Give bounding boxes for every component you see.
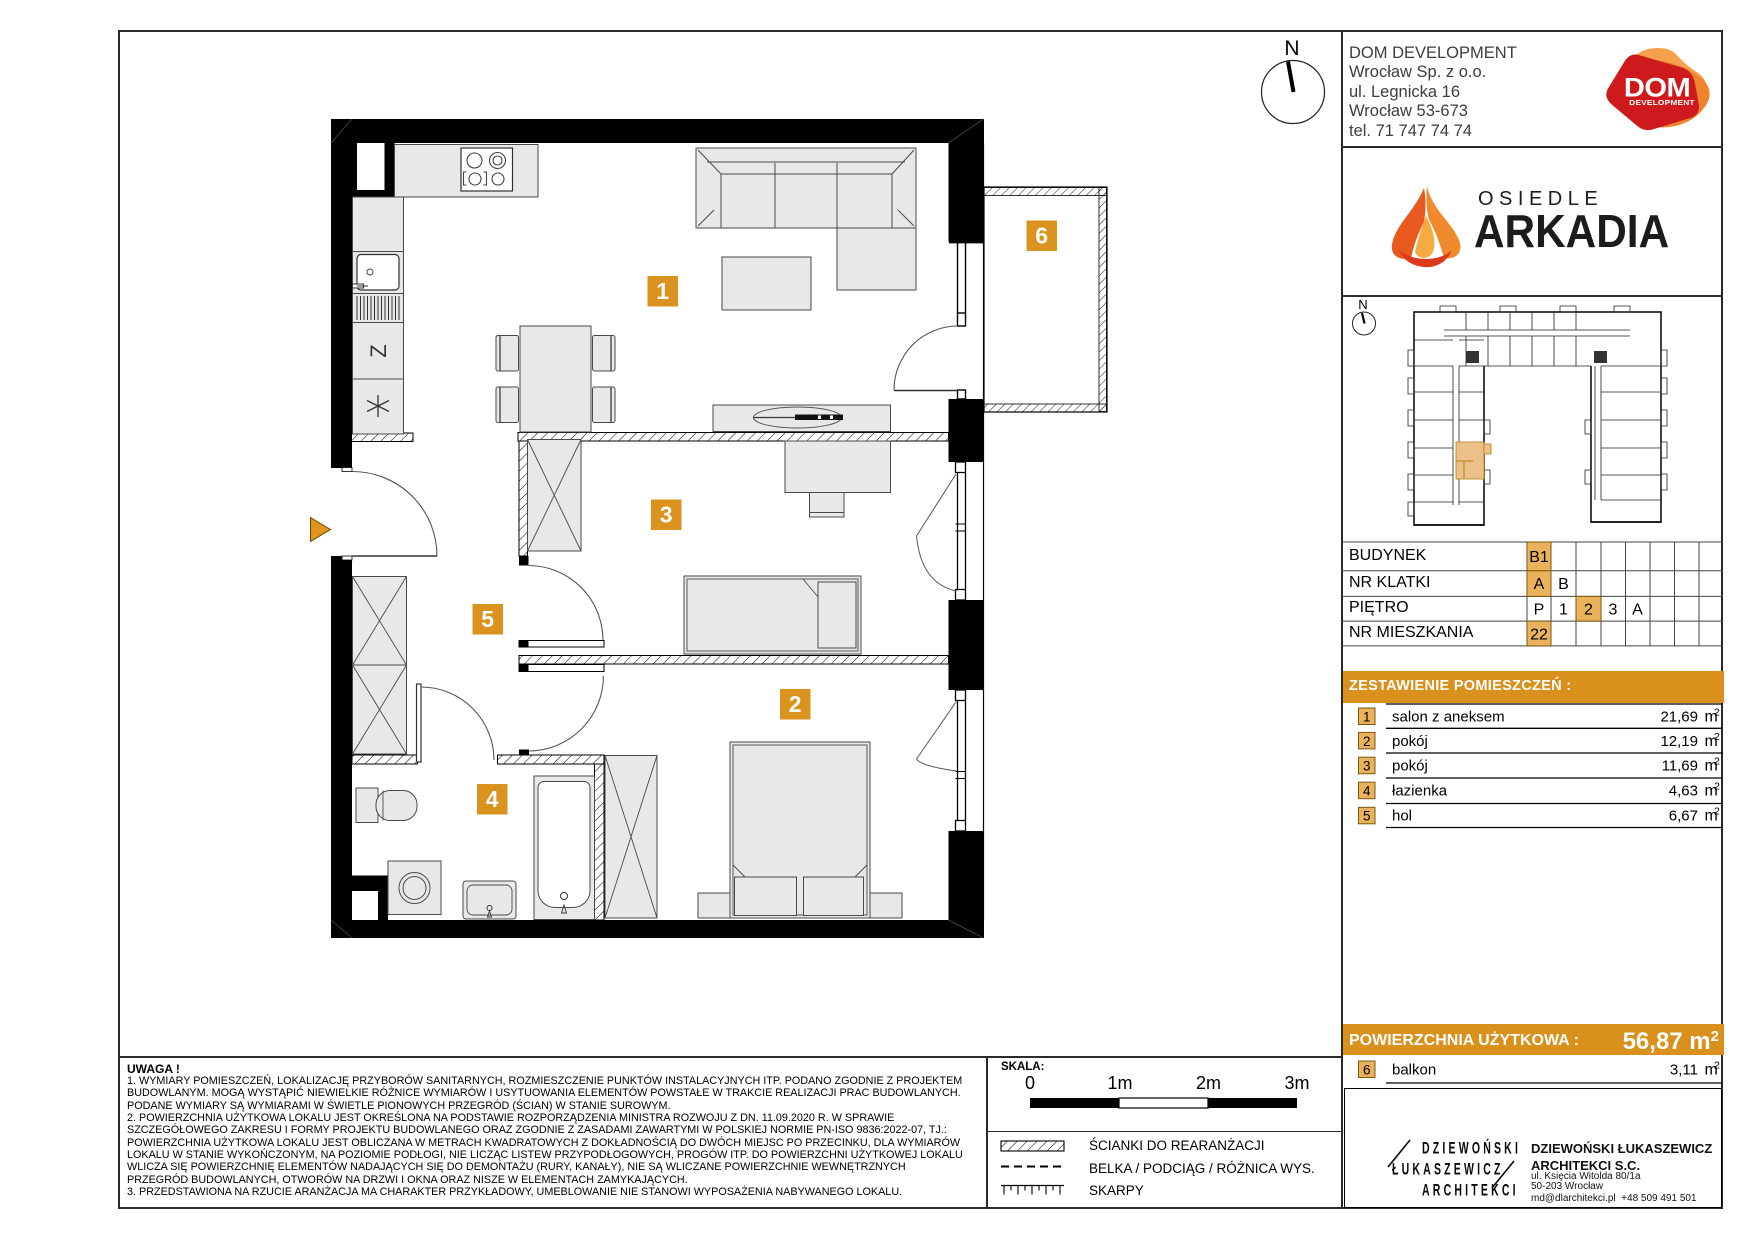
- svg-text:21,69: 21,69: [1660, 709, 1698, 726]
- svg-text:3m: 3m: [1284, 1073, 1309, 1093]
- svg-text:pokój: pokój: [1392, 733, 1428, 750]
- svg-text:12,19: 12,19: [1660, 733, 1698, 750]
- svg-text:5: 5: [481, 606, 494, 632]
- svg-text:1: 1: [1363, 710, 1371, 725]
- svg-text:B1: B1: [1529, 549, 1549, 566]
- svg-text:pokój: pokój: [1392, 758, 1428, 775]
- svg-text:2: 2: [1363, 734, 1371, 749]
- svg-text:22: 22: [1530, 626, 1548, 643]
- svg-text:6,67: 6,67: [1669, 808, 1698, 825]
- svg-text:łazienka: łazienka: [1392, 783, 1448, 800]
- svg-text:1m: 1m: [1107, 1073, 1132, 1093]
- svg-text:2: 2: [1584, 602, 1593, 619]
- svg-text:2: 2: [1714, 806, 1720, 818]
- svg-text:2m: 2m: [1196, 1073, 1221, 1093]
- svg-text:balkon: balkon: [1392, 1061, 1436, 1078]
- svg-text:2: 2: [789, 691, 802, 717]
- svg-text:DEVELOPMENT: DEVELOPMENT: [1629, 99, 1695, 108]
- svg-text:3,11: 3,11: [1670, 1061, 1698, 1078]
- svg-text:2: 2: [1714, 1059, 1720, 1071]
- svg-text:2: 2: [1714, 756, 1720, 768]
- svg-text:Z: Z: [366, 344, 391, 357]
- svg-text:1: 1: [656, 278, 669, 304]
- svg-text:2: 2: [1714, 731, 1720, 743]
- svg-text:salon z aneksem: salon z aneksem: [1392, 709, 1505, 726]
- svg-text:N: N: [1284, 37, 1299, 60]
- svg-text:4: 4: [486, 786, 499, 812]
- svg-text:3: 3: [660, 502, 673, 528]
- svg-text:A: A: [1632, 602, 1643, 619]
- svg-text:A: A: [1534, 576, 1545, 593]
- svg-text:B: B: [1558, 576, 1569, 593]
- svg-text:2: 2: [1714, 781, 1720, 793]
- svg-text:1: 1: [1559, 602, 1568, 619]
- svg-text:0: 0: [1025, 1073, 1035, 1093]
- svg-text:N: N: [1358, 297, 1367, 312]
- svg-text:2: 2: [1714, 707, 1720, 719]
- svg-text:6: 6: [1363, 1062, 1371, 1077]
- svg-text:P: P: [1534, 602, 1545, 619]
- svg-text:5: 5: [1363, 809, 1371, 824]
- svg-text:6: 6: [1035, 223, 1048, 249]
- svg-text:11,69: 11,69: [1662, 758, 1698, 775]
- svg-text:3: 3: [1363, 759, 1371, 774]
- svg-text:4,63: 4,63: [1669, 783, 1698, 800]
- svg-text:4: 4: [1363, 784, 1371, 799]
- svg-text:hol: hol: [1392, 808, 1412, 825]
- svg-text:3: 3: [1609, 602, 1618, 619]
